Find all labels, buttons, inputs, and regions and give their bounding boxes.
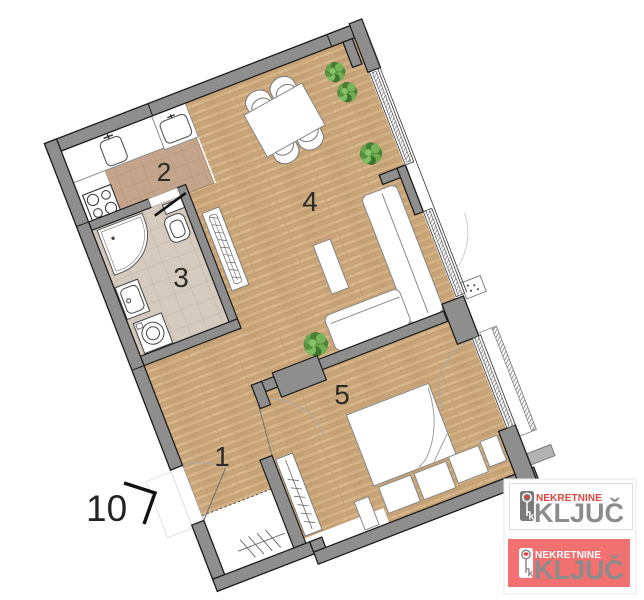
- svg-text:KLJUČ: KLJUČ: [534, 497, 624, 528]
- svg-text:k: k: [528, 569, 534, 580]
- svg-text:1: 1: [214, 441, 230, 472]
- svg-text:2: 2: [157, 157, 171, 187]
- svg-text:10: 10: [86, 488, 127, 529]
- svg-text:3: 3: [173, 262, 189, 293]
- svg-text:KLJUČ: KLJUČ: [534, 554, 624, 585]
- svg-text:4: 4: [302, 186, 318, 217]
- svg-text:5: 5: [334, 379, 350, 410]
